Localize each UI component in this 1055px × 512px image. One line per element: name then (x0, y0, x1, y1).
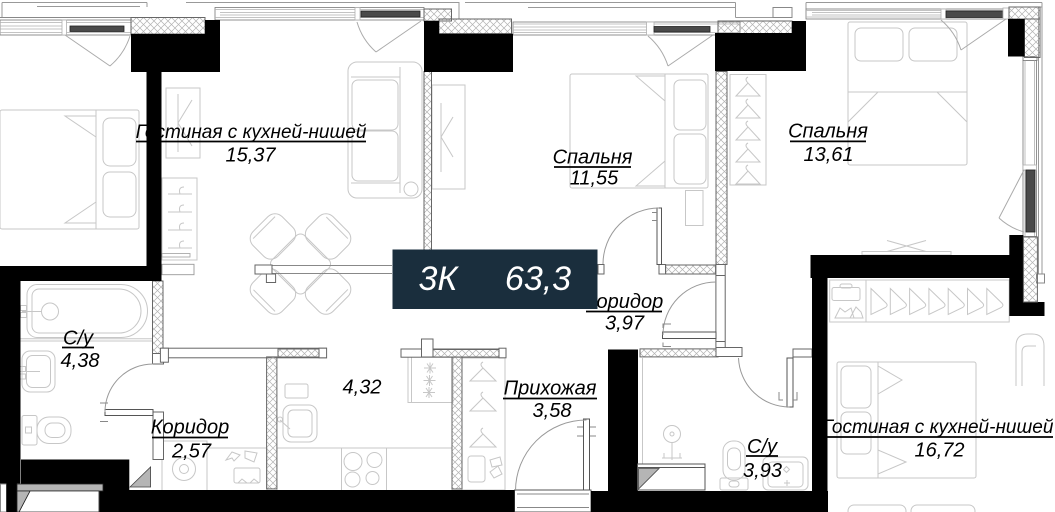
svg-text:С/у: С/у (747, 436, 778, 458)
svg-text:16,72: 16,72 (914, 440, 964, 462)
svg-text:11,55: 11,55 (570, 168, 619, 190)
svg-text:Спальня: Спальня (553, 147, 633, 169)
svg-text:Прихожая: Прихожая (504, 378, 597, 400)
svg-text:4,38: 4,38 (61, 350, 100, 372)
svg-text:С/у: С/у (63, 328, 94, 350)
svg-text:4,32: 4,32 (343, 377, 382, 399)
svg-text:Гостиная с кухней-нишей: Гостиная с кухней-нишей (823, 417, 1054, 438)
svg-text:3К: 3К (419, 260, 460, 298)
svg-text:3,97: 3,97 (605, 313, 645, 335)
svg-text:Гостиная с кухней-нишей: Гостиная с кухней-нишей (136, 122, 367, 143)
svg-text:2,57: 2,57 (171, 441, 212, 463)
svg-text:13,61: 13,61 (803, 144, 853, 166)
svg-text:15,37: 15,37 (225, 145, 276, 167)
svg-text:3,93: 3,93 (743, 460, 782, 482)
svg-text:63,3: 63,3 (505, 260, 571, 298)
svg-text:Коридор: Коридор (151, 417, 229, 439)
svg-text:3,58: 3,58 (533, 400, 572, 422)
svg-text:Спальня: Спальня (788, 120, 868, 142)
